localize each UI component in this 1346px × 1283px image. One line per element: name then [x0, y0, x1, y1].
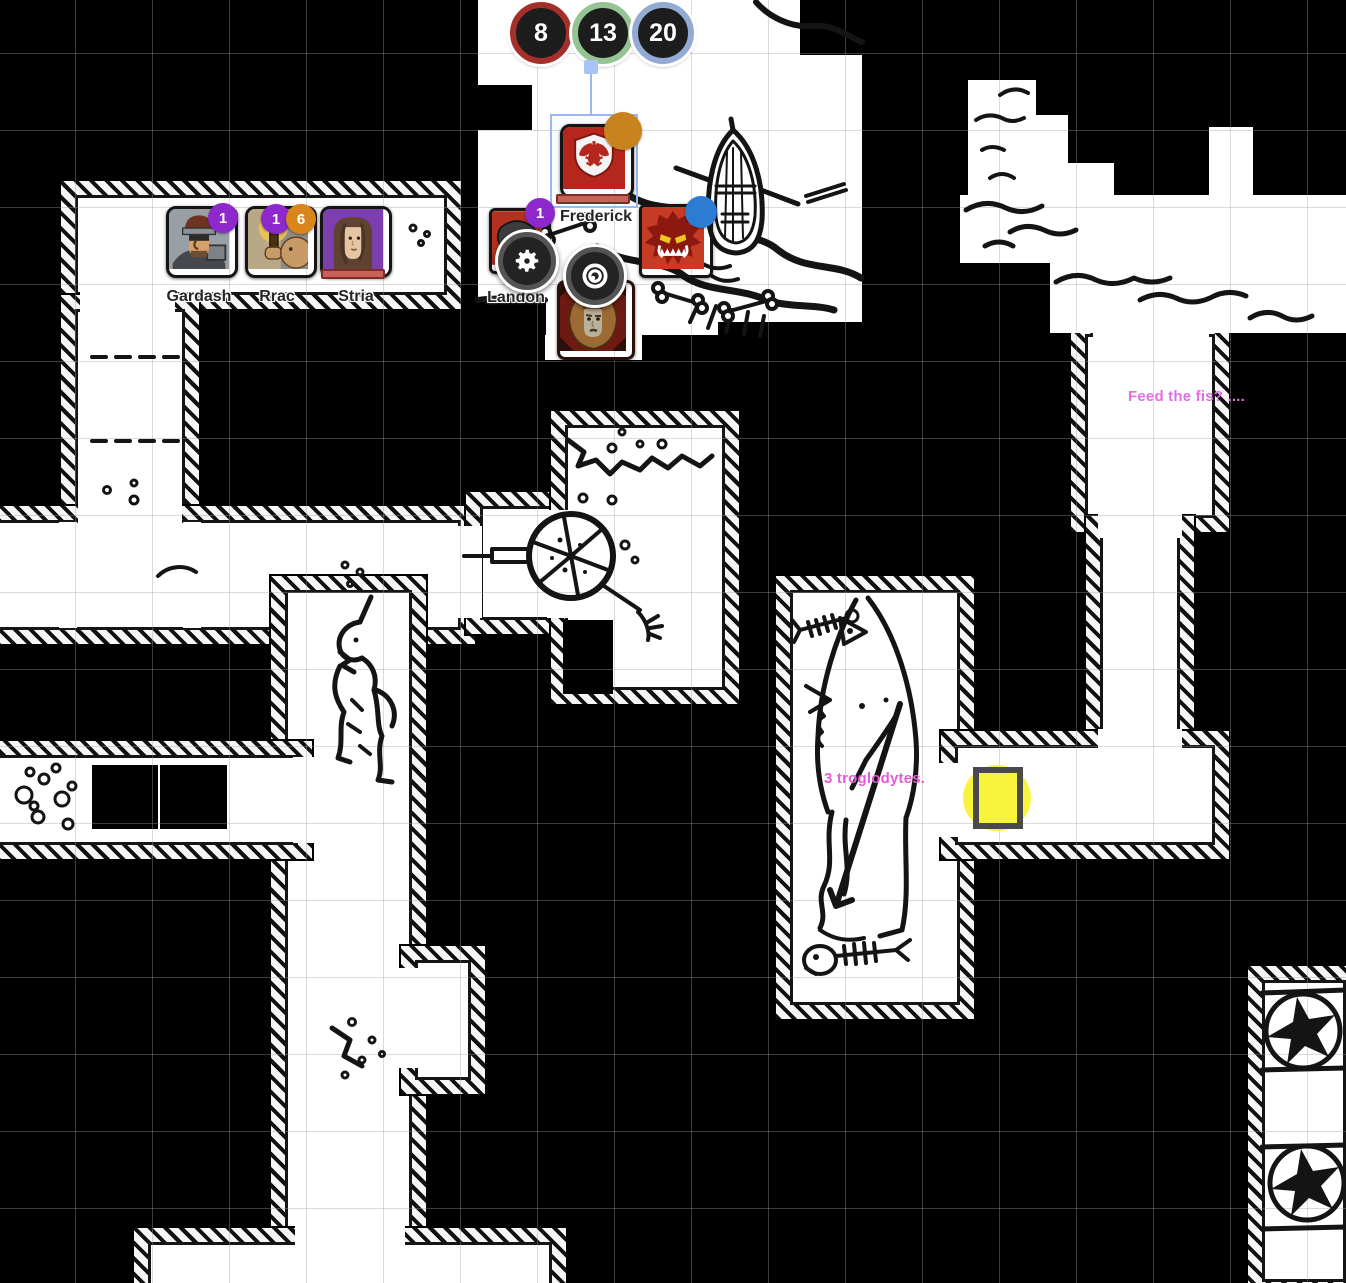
map-annotation: 3 troglodytes. — [824, 770, 925, 787]
map-drawings — [0, 0, 1346, 1283]
token-settings-button[interactable] — [495, 229, 559, 293]
badge-value: 6 — [297, 211, 305, 228]
dice-value: 13 — [589, 19, 617, 48]
dice-result-red[interactable]: 8 — [510, 2, 572, 64]
vtt-canvas[interactable]: 8 13 20 Frederick — [0, 0, 1346, 1283]
star-glyphs — [1262, 990, 1346, 1229]
troglodyte-sketch — [806, 598, 917, 940]
stria-portrait — [323, 209, 383, 269]
token-stria[interactable] — [320, 206, 392, 278]
selection-rotate-handle[interactable] — [584, 60, 598, 74]
token-label: Frederick — [560, 208, 632, 226]
badge-value: 1 — [536, 205, 544, 222]
door-dashes — [92, 357, 180, 441]
wall-creature-sketch — [335, 597, 395, 782]
dice-result-blue[interactable]: 20 — [632, 2, 694, 64]
wagon-wheel — [464, 514, 662, 640]
cave-in-rubble — [158, 567, 385, 1078]
health-bar — [321, 269, 385, 279]
badge-value: 1 — [272, 211, 280, 228]
badge-count: 1 — [208, 203, 238, 233]
token-label: Stria — [338, 288, 374, 306]
dice-value: 8 — [534, 19, 548, 48]
badge-count: 6 — [286, 204, 316, 234]
status-dot-orange — [604, 112, 642, 150]
badge-count: 1 — [525, 198, 555, 228]
token-focus-button[interactable] — [563, 244, 627, 308]
focus-icon — [580, 261, 610, 291]
badge-value: 1 — [219, 210, 227, 227]
dice-value: 20 — [649, 19, 677, 48]
map-annotation: Feed the fis? .... — [1128, 388, 1245, 405]
token-label: Gardash — [167, 288, 232, 306]
status-dot-blue — [685, 196, 717, 228]
yellow-highlight-square — [973, 767, 1023, 829]
token-label: Rrac — [259, 288, 295, 306]
gear-icon — [512, 246, 542, 276]
pebbles — [16, 225, 430, 829]
token-label: Landon — [487, 289, 545, 307]
health-bar — [556, 194, 630, 204]
dice-result-green[interactable]: 13 — [572, 2, 634, 64]
fish-skeletons — [792, 610, 910, 974]
cave-in-rubble — [568, 429, 712, 504]
selection-rotate-line — [590, 74, 592, 116]
